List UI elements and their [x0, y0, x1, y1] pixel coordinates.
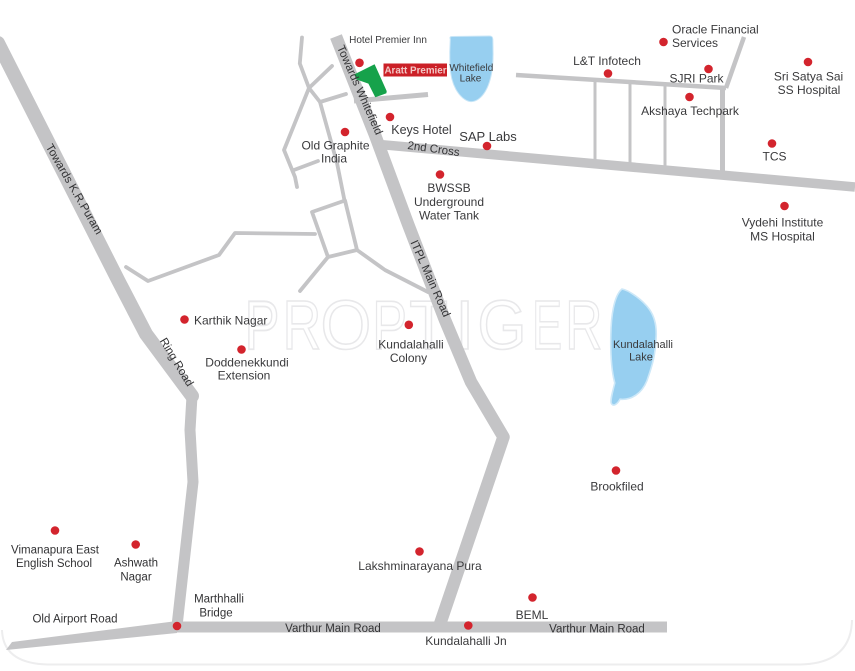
svg-text:Marthhalli: Marthhalli — [194, 594, 244, 606]
svg-text:Brookfiled: Brookfiled — [590, 480, 643, 494]
svg-text:Old Airport Road: Old Airport Road — [32, 614, 117, 626]
svg-text:English School: English School — [16, 558, 92, 570]
svg-text:India: India — [321, 152, 347, 166]
svg-text:Extension: Extension — [218, 369, 271, 383]
svg-text:Varthur Main Road: Varthur Main Road — [285, 623, 381, 635]
svg-text:Kundalahalli Jn: Kundalahalli Jn — [425, 634, 506, 648]
svg-text:Oracle Financial: Oracle Financial — [672, 23, 759, 37]
svg-text:BWSSB: BWSSB — [427, 181, 470, 195]
svg-text:Kundalahalli: Kundalahalli — [613, 339, 673, 351]
svg-text:Vydehi Institute: Vydehi Institute — [742, 216, 824, 230]
svg-text:BEML: BEML — [516, 608, 549, 622]
svg-text:Akshaya Techpark: Akshaya Techpark — [641, 104, 740, 118]
svg-text:G: G — [477, 287, 526, 364]
svg-text:Water Tank: Water Tank — [419, 209, 480, 223]
svg-text:Lake: Lake — [460, 74, 482, 85]
svg-text:Bridge: Bridge — [199, 608, 232, 620]
svg-text:MS Hospital: MS Hospital — [750, 230, 815, 244]
svg-text:SAP Labs: SAP Labs — [459, 129, 517, 144]
svg-text:O: O — [321, 287, 372, 364]
svg-text:Underground: Underground — [414, 195, 484, 209]
svg-text:Aratt Premier: Aratt Premier — [384, 65, 446, 76]
svg-text:Varthur Main Road: Varthur Main Road — [549, 624, 645, 636]
svg-text:SJRI Park: SJRI Park — [669, 72, 724, 86]
svg-text:Sri Satya Sai: Sri Satya Sai — [774, 70, 843, 84]
svg-text:Colony: Colony — [390, 351, 427, 365]
svg-text:Keys Hotel: Keys Hotel — [391, 123, 451, 137]
svg-text:Karthik Nagar: Karthik Nagar — [194, 314, 267, 328]
svg-text:Whitefield: Whitefield — [449, 63, 493, 74]
svg-text:Kundalahalli: Kundalahalli — [378, 338, 443, 352]
svg-text:R: R — [283, 287, 322, 364]
svg-text:Old Graphite: Old Graphite — [301, 139, 369, 153]
svg-text:E: E — [532, 287, 562, 364]
svg-text:Lake: Lake — [629, 352, 653, 364]
svg-text:Lakshminarayana Pura: Lakshminarayana Pura — [358, 559, 482, 573]
svg-text:Services: Services — [672, 36, 718, 50]
svg-text:L&T Infotech: L&T Infotech — [573, 54, 641, 68]
svg-text:R: R — [565, 286, 602, 363]
svg-text:SS Hospital: SS Hospital — [778, 83, 841, 97]
svg-text:Ashwath: Ashwath — [114, 558, 158, 570]
svg-text:Vimanapura East: Vimanapura East — [11, 545, 100, 557]
svg-text:Nagar: Nagar — [120, 572, 151, 584]
svg-text:Hotel Premier Inn: Hotel Premier Inn — [349, 35, 427, 46]
svg-text:TCS: TCS — [763, 150, 787, 164]
svg-text:Doddenekkundi: Doddenekkundi — [205, 356, 288, 370]
